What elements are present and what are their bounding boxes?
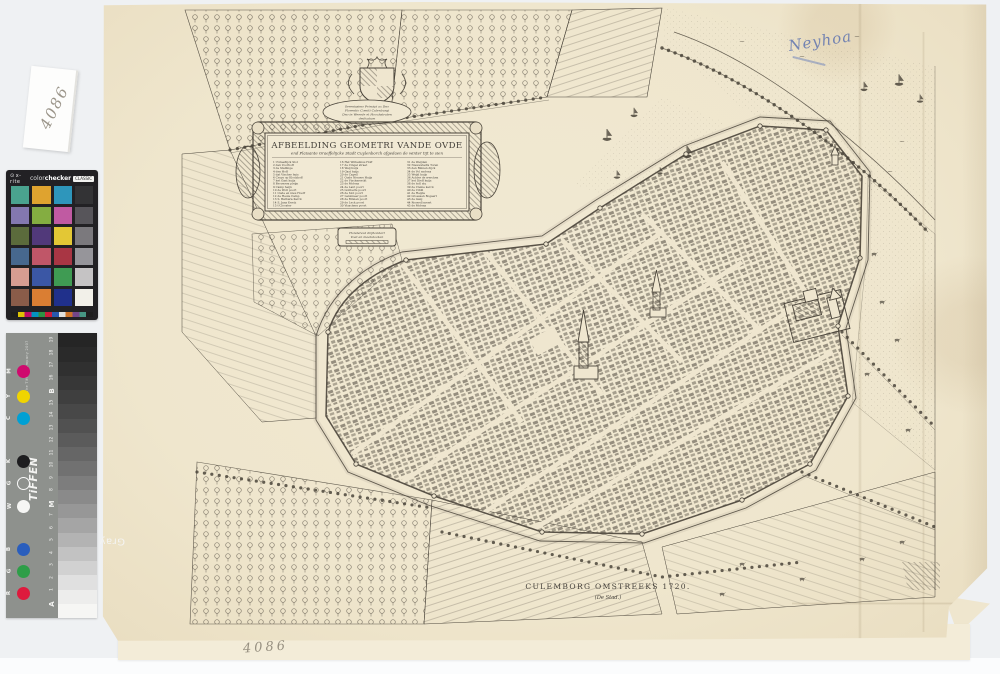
gray-scale-card: © The Tiffen Company 2007 TiFFEN Gray Sc… — [6, 333, 97, 618]
dot-patch — [17, 587, 30, 600]
map-sheet: Serenissimo Principi ac Dno Florentio Co… — [102, 2, 988, 642]
color-swatch — [11, 227, 29, 245]
color-swatch — [11, 268, 29, 286]
scale-number: 14 — [50, 411, 55, 419]
scale-number: 6 — [50, 523, 55, 531]
product-bold: checker — [45, 175, 71, 182]
scale-number: 9 — [50, 473, 55, 481]
gray-step — [58, 490, 97, 504]
gray-step — [58, 447, 97, 461]
gray-step — [58, 476, 97, 490]
scale-number: 11 — [50, 448, 55, 456]
dot-patch — [17, 543, 30, 556]
gray-step — [58, 518, 97, 532]
map-caption: CULEMBORG OMSTREEKS 1720. — [525, 582, 690, 591]
gray-step — [58, 547, 97, 561]
tiffen-panel: © The Tiffen Company 2007 TiFFEN Gray Sc… — [6, 333, 58, 618]
gray-step — [58, 390, 97, 404]
dot-patch — [17, 455, 30, 468]
tiffen-scale-numbers: 19181716B15141312111098M7654321A — [48, 333, 58, 618]
gray-step — [58, 604, 97, 618]
scale-number: 17 — [50, 361, 55, 369]
gray-step — [58, 404, 97, 418]
gray-step — [58, 433, 97, 447]
crease-line — [858, 2, 862, 642]
scale-number: 15 — [50, 398, 55, 406]
edge-shading — [962, 2, 988, 642]
colorchecker-ruler — [11, 312, 93, 317]
crease-line — [922, 32, 925, 632]
scale-number: 13 — [50, 423, 55, 431]
scale-number: 3 — [50, 561, 55, 569]
gray-step — [58, 575, 97, 589]
dot-patch — [17, 477, 30, 490]
dot-letter: G — [6, 481, 12, 486]
engraved-map: Serenissimo Principi ac Dno Florentio Co… — [102, 2, 988, 642]
color-swatch — [75, 268, 93, 286]
dot-patch — [17, 565, 30, 578]
dot-patch — [17, 412, 30, 425]
dot-patch — [17, 500, 30, 513]
color-checker-header: x-rite colorchecker CLASSIC — [10, 172, 94, 185]
map-subcaption: (De Stad.) — [595, 594, 622, 601]
gray-step — [58, 590, 97, 604]
color-swatch — [75, 186, 93, 204]
color-swatch — [54, 227, 72, 245]
product-light: color — [30, 175, 45, 182]
scale-number: 18 — [50, 348, 55, 356]
dot-letter: B — [6, 547, 12, 551]
scale-number: 8 — [50, 486, 55, 494]
color-swatch — [54, 248, 72, 266]
color-swatch — [75, 289, 93, 307]
gray-step — [58, 362, 97, 376]
scale-marker: A — [48, 600, 56, 608]
cartouche-title: AFBEELDING GEOMETRI VANDE OVDE — [270, 141, 462, 151]
color-swatch — [32, 186, 50, 204]
gray-step — [58, 561, 97, 575]
colorchecker-grid — [11, 186, 93, 306]
gray-step — [58, 533, 97, 547]
color-checker-card: x-rite colorchecker CLASSIC — [6, 170, 98, 320]
gray-step — [58, 461, 97, 475]
color-swatch — [32, 289, 50, 307]
cartouche-subtitle: end Plaisante Graeffelijcke Stadt Cuylen… — [291, 151, 443, 156]
gray-step — [58, 333, 97, 347]
color-swatch — [75, 248, 93, 266]
color-swatch — [75, 207, 93, 225]
color-swatch — [11, 207, 29, 225]
color-swatch — [32, 248, 50, 266]
color-swatch — [32, 268, 50, 286]
scale-number: 7 — [50, 511, 55, 519]
dot-letter: R — [6, 591, 12, 595]
title-cartouche: AFBEELDING GEOMETRI VANDE OVDE end Plais… — [236, 122, 500, 220]
dot-letter: W — [7, 503, 13, 509]
scale-number: 10 — [50, 461, 55, 469]
scale-number: 16 — [50, 373, 55, 381]
gray-step — [58, 419, 97, 433]
pencil-inventory-number: 4086 — [243, 638, 289, 656]
imprint-banner: Serenissimo Principi ac Dno Florentio Co… — [323, 100, 411, 124]
scale-number: 2 — [50, 573, 55, 581]
xrite-logo: x-rite — [10, 173, 30, 185]
legend-item: 15 t'Clooster — [273, 203, 292, 207]
scale-number: 19 — [50, 336, 55, 344]
color-swatch — [32, 207, 50, 225]
imprint-line: dedicatum — [359, 117, 376, 121]
color-swatch — [54, 289, 72, 307]
scale-number: 4 — [50, 548, 55, 556]
gray-step — [58, 504, 97, 518]
scale-number: 5 — [50, 536, 55, 544]
classic-badge: CLASSIC — [73, 176, 94, 182]
color-swatch — [11, 248, 29, 266]
scale-cartouche: Hondereut drijhondert Voet en maetstocke… — [338, 228, 396, 246]
colorchecker-label: colorchecker — [30, 175, 71, 182]
scale-marker: M — [48, 500, 56, 508]
archive-photo-stage: Serenissimo Principi ac Dno Florentio Co… — [0, 0, 1000, 674]
dot-letter: Y — [6, 394, 12, 398]
background-strip — [0, 658, 1000, 674]
scale-marker: B — [48, 387, 56, 395]
legend-item: 30 Visschers poort — [340, 203, 367, 207]
inventory-slip: 4086 — [23, 66, 78, 152]
dot-letter: C — [6, 416, 12, 420]
slip-number: 4086 — [36, 83, 72, 132]
color-swatch — [11, 186, 29, 204]
dot-letter: M — [7, 368, 13, 373]
color-swatch — [54, 268, 72, 286]
dot-letter: K — [6, 459, 12, 463]
scale-number: 12 — [50, 436, 55, 444]
legend-item: 45 de Molens — [407, 203, 427, 207]
color-swatch — [54, 207, 72, 225]
color-swatch — [11, 289, 29, 307]
color-swatch — [75, 227, 93, 245]
dot-letter: G — [6, 569, 12, 574]
color-swatch — [32, 227, 50, 245]
dot-patch — [17, 390, 30, 403]
scale-number: 1 — [50, 586, 55, 594]
color-swatch — [54, 186, 72, 204]
gray-step — [58, 347, 97, 361]
scale-line: Voet en maetstocken — [351, 235, 384, 239]
dot-patch — [17, 365, 30, 378]
gray-scale-strip — [58, 333, 97, 618]
gray-step — [58, 376, 97, 390]
plate-corner — [902, 562, 940, 590]
